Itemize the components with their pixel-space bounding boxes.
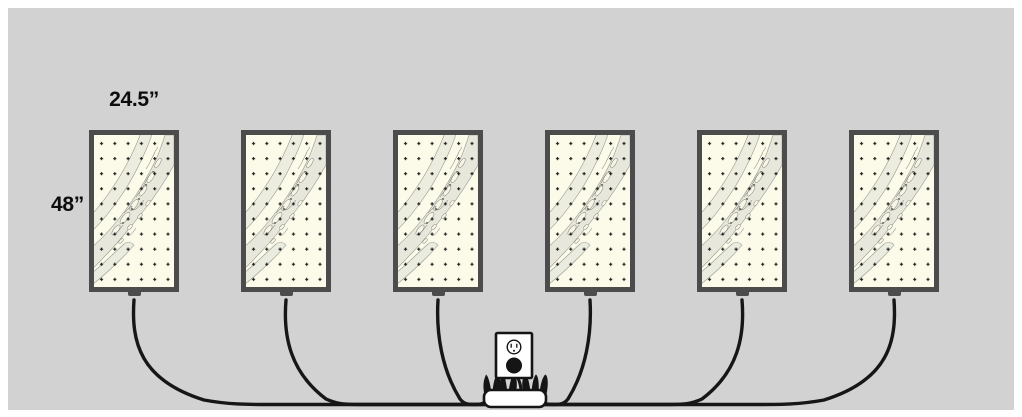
cable-panel-4 xyxy=(524,300,590,405)
map-print xyxy=(246,135,326,287)
cable-panel-5 xyxy=(530,300,743,405)
panel-height-label: 48” xyxy=(36,193,84,217)
map-print xyxy=(94,135,174,287)
cable-panel-6 xyxy=(538,300,894,405)
map-panel-5 xyxy=(697,130,787,292)
wall-outlet xyxy=(496,333,532,378)
power-cables xyxy=(134,300,895,405)
map-print xyxy=(854,135,934,287)
cable-mount-tab xyxy=(432,287,445,296)
wall-background: 24.5” 48” xyxy=(8,8,1014,410)
cable-mount-tab xyxy=(736,287,749,296)
cable-panel-3 xyxy=(438,300,506,405)
cable-mount-tab xyxy=(584,287,597,296)
cable-mount-tab xyxy=(128,287,141,296)
diagram-canvas: 24.5” 48” xyxy=(0,0,1022,417)
outlet-plug xyxy=(506,358,522,374)
cable-panel-1 xyxy=(134,300,490,405)
outlet-receptacle xyxy=(507,340,521,354)
map-print xyxy=(550,135,630,287)
cable-panel-2 xyxy=(285,300,498,405)
power-strip-plugs xyxy=(483,375,547,395)
cable-mount-tab xyxy=(888,287,901,296)
map-panel-6 xyxy=(849,130,939,292)
map-panel-3 xyxy=(393,130,483,292)
panel-width-label: 24.5” xyxy=(89,88,179,112)
map-panel-1 xyxy=(89,130,179,292)
cable-mount-tab xyxy=(280,287,293,296)
power-strip xyxy=(484,390,546,407)
map-print xyxy=(398,135,478,287)
map-panel-4 xyxy=(545,130,635,292)
strip-power-cord xyxy=(515,372,521,392)
map-panel-2 xyxy=(241,130,331,292)
map-print xyxy=(702,135,782,287)
